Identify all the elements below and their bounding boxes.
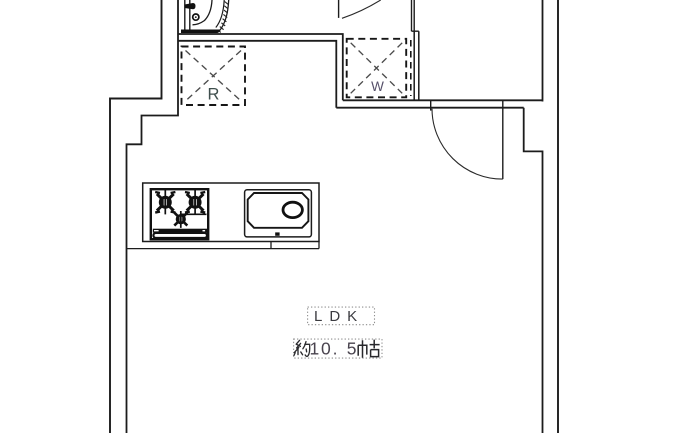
svg-text:LDK: LDK [314,308,364,325]
svg-text:R: R [208,86,220,104]
svg-text:W: W [371,79,384,94]
svg-text:5: 5 [347,339,357,359]
svg-text:10.: 10. [310,339,340,359]
